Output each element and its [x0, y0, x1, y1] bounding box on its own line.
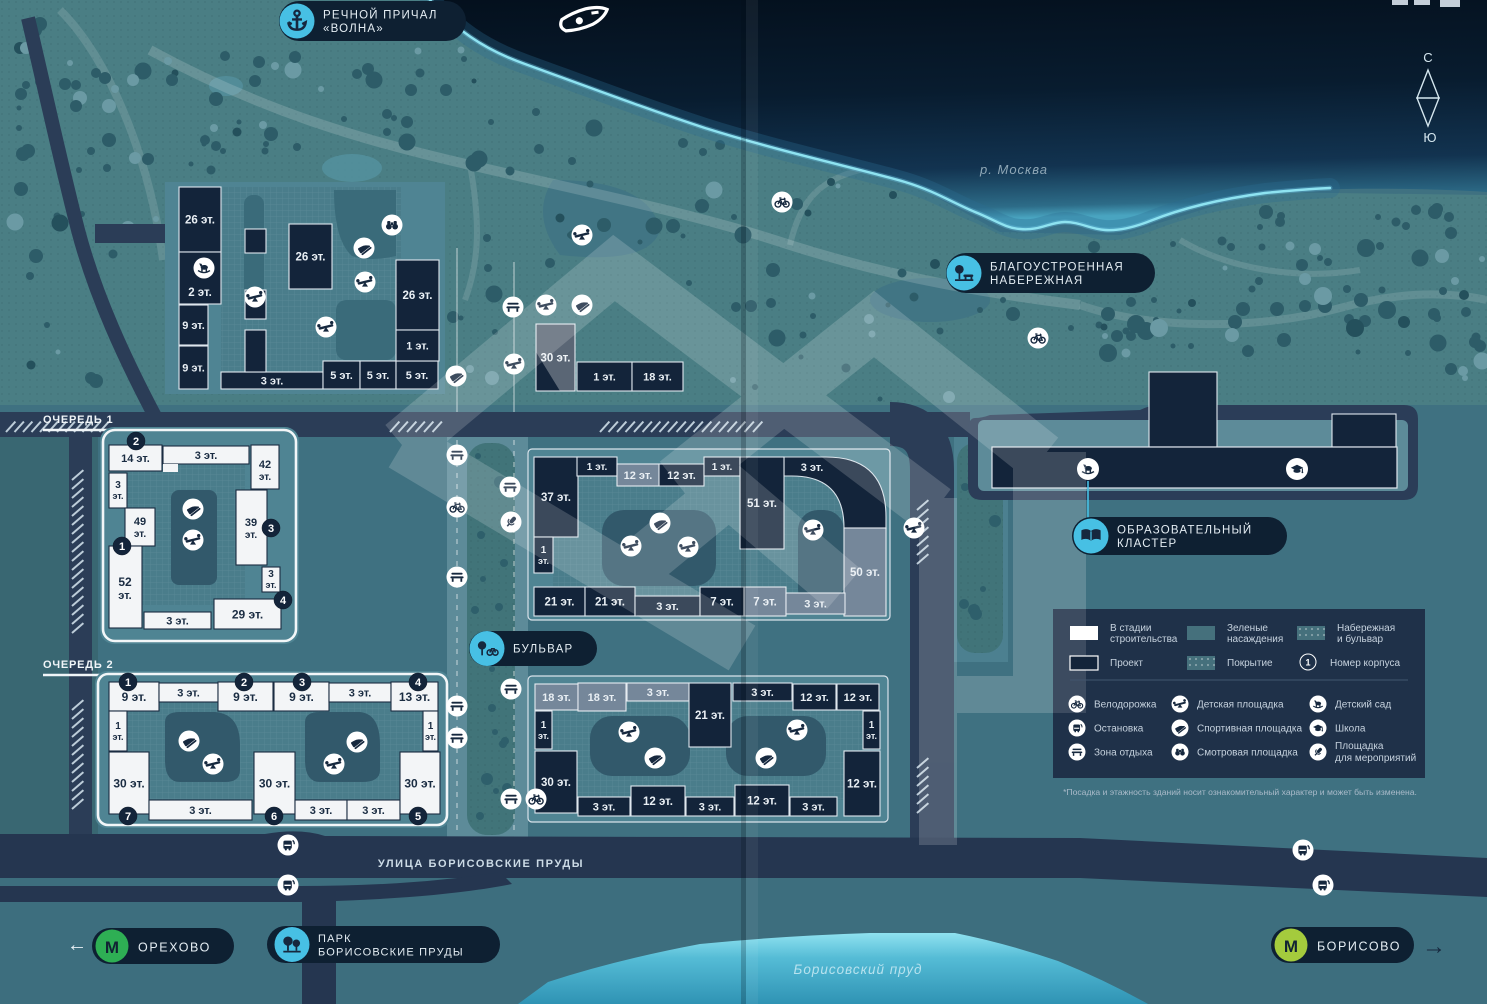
svg-text:3 эт.: 3 эт.: [166, 615, 189, 627]
svg-text:эт.: эт.: [118, 590, 131, 602]
svg-text:3 эт.: 3 эт.: [349, 687, 372, 699]
svg-text:эт.: эт.: [538, 731, 549, 741]
svg-text:ОЧЕРЕДЬ 2: ОЧЕРЕДЬ 2: [43, 659, 113, 671]
svg-text:1 эт.: 1 эт.: [593, 371, 616, 383]
svg-text:2: 2: [241, 677, 247, 689]
svg-text:9 эт.: 9 эт.: [122, 690, 147, 704]
svg-text:9 эт.: 9 эт.: [182, 320, 205, 332]
svg-text:эт.: эт.: [259, 472, 271, 483]
svg-text:3 эт.: 3 эт.: [195, 450, 218, 462]
svg-text:1: 1: [125, 677, 131, 689]
svg-text:52: 52: [118, 575, 132, 589]
svg-text:БОРИСОВО: БОРИСОВО: [1317, 940, 1401, 954]
svg-text:Зеленые: Зеленые: [1227, 623, 1268, 634]
svg-text:3: 3: [268, 569, 274, 580]
svg-text:3 эт.: 3 эт.: [801, 462, 824, 474]
svg-text:3: 3: [268, 523, 274, 535]
svg-text:13 эт.: 13 эт.: [399, 690, 430, 704]
svg-text:5 эт.: 5 эт.: [367, 370, 390, 382]
svg-text:эт.: эт.: [266, 580, 277, 590]
svg-text:39: 39: [245, 517, 257, 529]
svg-text:5 эт.: 5 эт.: [330, 370, 353, 382]
svg-text:С: С: [1423, 50, 1432, 65]
svg-text:18 эт.: 18 эт.: [588, 692, 617, 704]
svg-text:18 эт.: 18 эт.: [542, 692, 571, 704]
svg-text:Школа: Школа: [1335, 724, 1366, 735]
svg-text:эт.: эт.: [113, 732, 124, 742]
svg-text:3 эт.: 3 эт.: [593, 801, 616, 813]
svg-text:«ВОЛНА»: «ВОЛНА»: [323, 23, 384, 35]
svg-text:ОБРАЗОВАТЕЛЬНЫЙ: ОБРАЗОВАТЕЛЬНЫЙ: [1117, 523, 1252, 536]
svg-text:30 эт.: 30 эт.: [259, 776, 290, 790]
svg-text:и бульвар: и бульвар: [1337, 633, 1383, 645]
svg-text:30 эт.: 30 эт.: [113, 776, 144, 790]
svg-text:Детский сад: Детский сад: [1335, 700, 1391, 711]
svg-text:12 эт.: 12 эт.: [624, 470, 653, 482]
svg-text:3 эт.: 3 эт.: [189, 805, 212, 817]
svg-text:Велодорожка: Велодорожка: [1094, 700, 1157, 711]
svg-text:49: 49: [134, 516, 146, 528]
svg-text:КЛАСТЕР: КЛАСТЕР: [1117, 538, 1177, 550]
svg-text:УЛИЦА БОРИСОВСКИЕ ПРУДЫ: УЛИЦА БОРИСОВСКИЕ ПРУДЫ: [378, 858, 584, 870]
svg-text:насаждения: насаждения: [1227, 634, 1283, 645]
svg-text:Набережная: Набережная: [1337, 622, 1395, 634]
svg-text:Ю: Ю: [1423, 130, 1436, 145]
svg-text:1: 1: [119, 541, 125, 553]
svg-text:1 эт.: 1 эт.: [587, 462, 608, 473]
svg-text:12 эт.: 12 эт.: [643, 796, 673, 808]
svg-text:эт.: эт.: [245, 530, 257, 541]
svg-text:М: М: [1284, 937, 1298, 956]
svg-text:РЕЧНОЙ ПРИЧАЛ: РЕЧНОЙ ПРИЧАЛ: [323, 8, 438, 21]
svg-text:3 эт.: 3 эт.: [802, 801, 825, 813]
svg-text:2 эт.: 2 эт.: [188, 287, 212, 299]
svg-text:ОРЕХОВО: ОРЕХОВО: [138, 941, 211, 955]
svg-text:Зона отдыха: Зона отдыха: [1094, 748, 1153, 759]
svg-text:Площадка: Площадка: [1335, 741, 1384, 752]
svg-text:эт.: эт.: [866, 731, 877, 741]
svg-text:НАБЕРЕЖНАЯ: НАБЕРЕЖНАЯ: [990, 275, 1083, 287]
svg-text:1: 1: [115, 721, 121, 732]
svg-text:26 эт.: 26 эт.: [295, 252, 325, 264]
svg-text:2: 2: [133, 436, 139, 448]
svg-text:26 эт.: 26 эт.: [185, 215, 215, 227]
svg-text:1: 1: [869, 720, 875, 731]
svg-text:3: 3: [115, 480, 121, 491]
svg-text:Спортивная площадка: Спортивная площадка: [1197, 724, 1302, 735]
svg-text:4: 4: [415, 677, 422, 689]
svg-text:1: 1: [1305, 658, 1310, 668]
svg-text:3 эт.: 3 эт.: [647, 687, 670, 699]
svg-text:12 эт.: 12 эт.: [800, 692, 829, 704]
svg-text:9 эт.: 9 эт.: [289, 690, 314, 704]
svg-text:Проект: Проект: [1110, 658, 1143, 669]
svg-text:29 эт.: 29 эт.: [232, 607, 263, 621]
svg-text:30 эт.: 30 эт.: [541, 777, 571, 789]
svg-text:←: ←: [67, 934, 87, 956]
svg-text:9 эт.: 9 эт.: [233, 690, 258, 704]
svg-text:1: 1: [428, 721, 434, 732]
svg-text:5 эт.: 5 эт.: [406, 370, 429, 382]
svg-text:Покрытие: Покрытие: [1227, 658, 1273, 669]
svg-text:ПАРК: ПАРК: [318, 933, 352, 945]
svg-text:7: 7: [125, 811, 131, 823]
svg-text:строительства: строительства: [1110, 634, 1178, 645]
svg-text:14 эт.: 14 эт.: [121, 453, 150, 465]
svg-text:БОРИСОВСКИЕ ПРУДЫ: БОРИСОВСКИЕ ПРУДЫ: [318, 946, 464, 958]
svg-text:БУЛЬВАР: БУЛЬВАР: [513, 644, 573, 656]
svg-text:4: 4: [280, 595, 287, 607]
svg-text:эт.: эт.: [134, 529, 146, 540]
svg-text:Остановка: Остановка: [1094, 724, 1144, 735]
svg-text:30 эт.: 30 эт.: [404, 776, 435, 790]
svg-text:21 эт.: 21 эт.: [544, 597, 574, 609]
svg-text:9 эт.: 9 эт.: [182, 362, 205, 374]
svg-text:12 эт.: 12 эт.: [844, 692, 873, 704]
svg-text:БЛАГОУСТРОЕННАЯ: БЛАГОУСТРОЕННАЯ: [990, 261, 1124, 273]
svg-text:ОЧЕРЕДЬ 1: ОЧЕРЕДЬ 1: [43, 414, 113, 426]
svg-text:эт.: эт.: [425, 732, 436, 742]
svg-text:р. Москва: р. Москва: [979, 162, 1048, 177]
svg-text:для мероприятий: для мероприятий: [1335, 753, 1416, 764]
svg-text:3: 3: [299, 677, 305, 689]
svg-text:→: →: [1422, 933, 1446, 960]
svg-text:18 эт.: 18 эт.: [643, 371, 672, 383]
svg-text:В стадии: В стадии: [1110, 623, 1151, 634]
svg-text:26 эт.: 26 эт.: [402, 290, 432, 302]
svg-text:1: 1: [541, 720, 547, 731]
svg-text:6: 6: [271, 811, 277, 823]
svg-text:эт.: эт.: [113, 491, 124, 501]
svg-text:5: 5: [415, 811, 421, 823]
svg-text:12 эт.: 12 эт.: [847, 779, 877, 791]
svg-text:21 эт.: 21 эт.: [695, 710, 725, 722]
svg-text:3 эт.: 3 эт.: [261, 375, 284, 387]
svg-text:Смотровая площадка: Смотровая площадка: [1197, 748, 1298, 759]
svg-text:3 эт.: 3 эт.: [699, 801, 722, 813]
svg-text:1 эт.: 1 эт.: [406, 340, 429, 352]
svg-text:3 эт.: 3 эт.: [177, 687, 200, 699]
svg-text:3 эт.: 3 эт.: [310, 805, 333, 817]
svg-text:3 эт.: 3 эт.: [362, 805, 385, 817]
svg-text:Детская площадка: Детская площадка: [1197, 700, 1284, 711]
svg-text:42: 42: [259, 459, 271, 471]
svg-text:Борисовский пруд: Борисовский пруд: [794, 962, 923, 977]
svg-text:М: М: [105, 938, 119, 957]
svg-text:*Посадка и этажность зданий но: *Посадка и этажность зданий носит ознако…: [1063, 787, 1417, 797]
svg-text:Номер корпуса: Номер корпуса: [1330, 658, 1400, 669]
